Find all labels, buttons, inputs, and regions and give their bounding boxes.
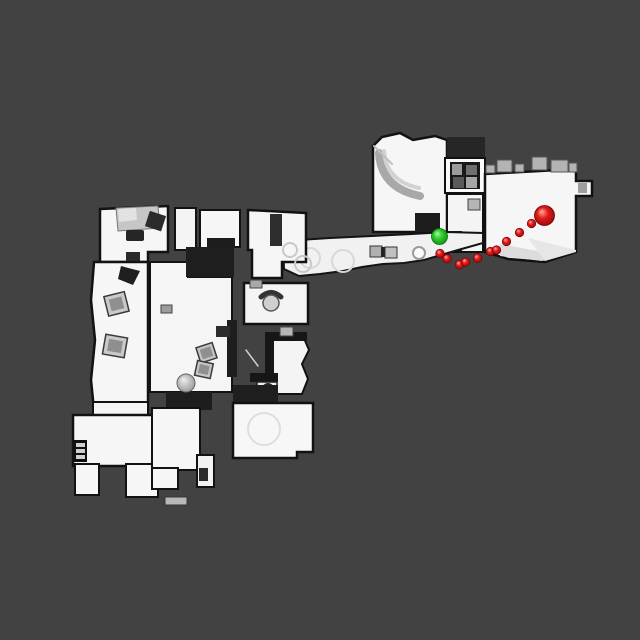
interior-wall [186,247,234,277]
round-stool [413,247,425,259]
room-lower-middle-leg [152,408,200,470]
small-prop [280,327,293,336]
radiator-stripe [76,449,85,453]
side-table [126,230,144,241]
wall-notch-prop [578,183,587,193]
small-prop [161,305,172,313]
counter-clutter [486,165,495,173]
room-lower-left-foot [75,464,99,495]
dark-counter [207,238,235,247]
stair-step [466,165,477,175]
hall-strip [175,208,196,250]
small-prop [250,280,262,288]
path-waypoint-dot-7 [492,246,501,255]
stair-step [466,177,477,188]
radiator-stripe [76,443,85,447]
wall-gap-above-stairs [447,137,485,160]
dark-fixture [199,468,208,481]
room-lower-middle-foot [152,468,178,489]
path-waypoint-dot-9 [515,228,524,237]
corridor-prop-box [370,246,382,257]
path-waypoint-dot-4 [461,258,470,267]
room-bedroom-lower [233,403,313,458]
dark-side-table [216,326,230,337]
dark-shelf [126,252,140,261]
interior-wall [233,385,278,402]
path-waypoint-dot-10 [527,219,536,228]
bed-pillow [118,208,137,222]
counter-clutter [532,157,547,170]
path-waypoint-dot-2 [443,254,452,263]
round-table-ball [177,374,195,392]
stair-step [453,177,464,188]
counter-clutter [569,163,577,172]
map-viewer-canvas [0,0,640,640]
counter-clutter [515,164,524,172]
chair-seat [263,295,279,311]
goal-position-marker [535,206,555,226]
radiator-stripe [76,455,85,459]
bottom-bench [165,497,187,505]
stair-step [452,164,462,175]
interior-wall [250,373,278,382]
floorplan-map [0,0,640,640]
start-position-marker [432,229,448,245]
counter-clutter [551,160,568,172]
counter-clutter [497,160,512,172]
corridor-prop-box [385,247,397,258]
armchair-cushion [107,339,123,353]
path-waypoint-dot-5 [473,254,482,263]
closet-prop [468,199,480,210]
path-waypoint-dot-8 [502,237,511,246]
dark-wardrobe [270,214,282,246]
